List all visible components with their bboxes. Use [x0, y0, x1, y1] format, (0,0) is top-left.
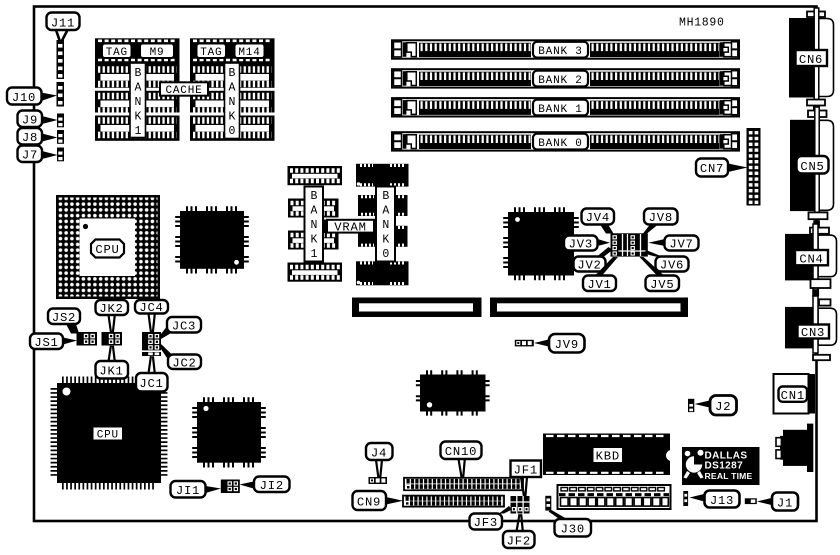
- svg-text:CPU: CPU: [95, 243, 119, 257]
- svg-text:CN10: CN10: [445, 445, 477, 459]
- svg-text:J8: J8: [22, 131, 38, 145]
- svg-text:JV6: JV6: [660, 259, 684, 273]
- svg-text:0: 0: [382, 248, 389, 261]
- svg-text:J11: J11: [51, 17, 75, 31]
- svg-text:K: K: [311, 234, 318, 247]
- svg-text:CACHE: CACHE: [165, 85, 202, 97]
- svg-text:B: B: [311, 190, 318, 203]
- svg-text:JV2: JV2: [577, 259, 601, 273]
- svg-text:JF1: JF1: [514, 464, 538, 478]
- svg-text:JV9: JV9: [555, 338, 579, 352]
- svg-text:CN9: CN9: [357, 496, 381, 510]
- svg-text:JK1: JK1: [99, 365, 123, 379]
- svg-text:A: A: [382, 205, 389, 218]
- svg-text:BANK 2: BANK 2: [538, 75, 582, 87]
- svg-text:CN7: CN7: [700, 162, 724, 176]
- svg-text:JI1: JI1: [176, 484, 200, 498]
- svg-text:JF2: JF2: [507, 535, 531, 549]
- svg-text:JV8: JV8: [649, 211, 673, 225]
- svg-text:CN1: CN1: [781, 389, 805, 403]
- svg-text:J2: J2: [715, 400, 731, 414]
- svg-text:TAG: TAG: [106, 47, 128, 59]
- svg-text:MH1890: MH1890: [679, 17, 725, 30]
- svg-text:N: N: [382, 219, 389, 232]
- svg-text:K: K: [382, 234, 389, 247]
- svg-text:J9: J9: [22, 114, 38, 128]
- svg-text:J7: J7: [22, 149, 38, 163]
- svg-text:JC3: JC3: [172, 320, 196, 334]
- svg-text:TAG: TAG: [200, 47, 222, 59]
- svg-text:BANK 0: BANK 0: [538, 138, 582, 150]
- svg-text:J30: J30: [561, 523, 585, 537]
- svg-text:B: B: [135, 67, 142, 80]
- svg-text:JV4: JV4: [586, 211, 610, 225]
- svg-text:A: A: [135, 82, 142, 95]
- svg-text:KBD: KBD: [596, 449, 620, 463]
- svg-text:1: 1: [311, 248, 318, 261]
- svg-text:N: N: [311, 219, 318, 232]
- svg-text:A: A: [311, 205, 318, 218]
- svg-text:1: 1: [135, 125, 142, 138]
- svg-text:K: K: [229, 111, 236, 124]
- svg-text:M9: M9: [150, 47, 165, 59]
- svg-text:JC1: JC1: [139, 377, 163, 391]
- svg-text:BANK 1: BANK 1: [538, 104, 582, 116]
- svg-text:JF3: JF3: [474, 516, 498, 530]
- svg-text:JV1: JV1: [587, 278, 611, 292]
- svg-text:JI2: JI2: [260, 479, 284, 493]
- svg-text:JK2: JK2: [99, 302, 123, 316]
- svg-text:B: B: [229, 67, 236, 80]
- svg-text:JC2: JC2: [172, 357, 196, 371]
- svg-text:A: A: [229, 82, 236, 95]
- svg-text:BANK 3: BANK 3: [538, 46, 582, 58]
- svg-text:CN5: CN5: [800, 160, 824, 174]
- svg-text:JV3: JV3: [569, 238, 593, 252]
- svg-text:J10: J10: [12, 91, 36, 105]
- svg-text:N: N: [135, 96, 142, 109]
- svg-text:JV7: JV7: [669, 238, 693, 252]
- svg-text:J13: J13: [710, 494, 734, 508]
- svg-text:J1: J1: [777, 497, 793, 511]
- svg-text:REAL TIME: REAL TIME: [705, 471, 753, 481]
- svg-text:JV5: JV5: [650, 278, 674, 292]
- svg-text:CN3: CN3: [801, 326, 825, 340]
- svg-text:N: N: [229, 96, 236, 109]
- svg-text:0: 0: [229, 125, 236, 138]
- svg-text:JS1: JS1: [34, 336, 58, 350]
- svg-text:B: B: [382, 190, 389, 203]
- svg-text:CN6: CN6: [799, 53, 823, 67]
- svg-text:CN4: CN4: [799, 252, 823, 266]
- svg-text:JS2: JS2: [52, 311, 76, 325]
- svg-text:M14: M14: [238, 47, 260, 59]
- svg-text:J4: J4: [371, 447, 387, 461]
- svg-text:JC4: JC4: [139, 301, 163, 315]
- svg-text:K: K: [135, 111, 142, 124]
- svg-text:CPU: CPU: [97, 430, 119, 442]
- svg-text:VRAM: VRAM: [334, 220, 366, 234]
